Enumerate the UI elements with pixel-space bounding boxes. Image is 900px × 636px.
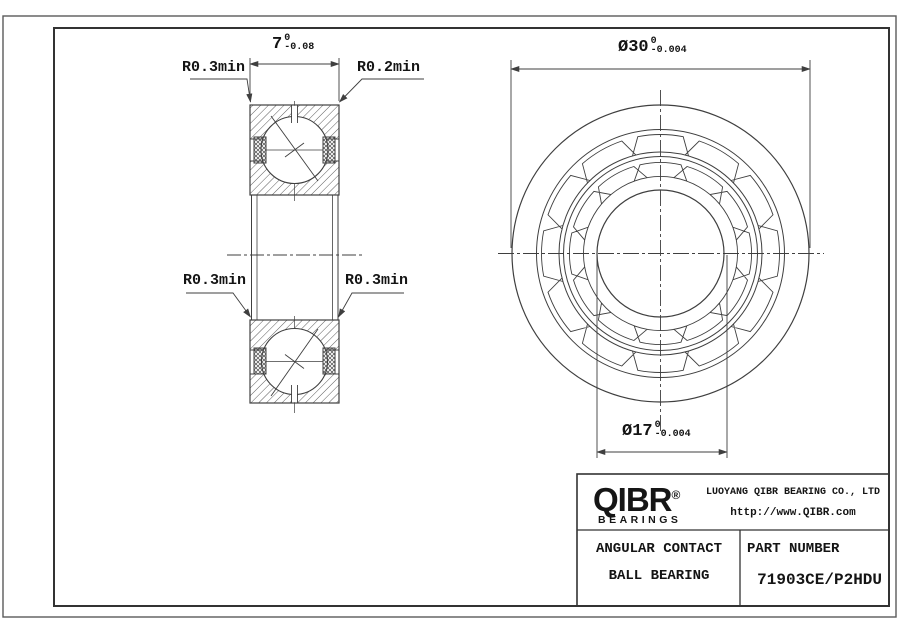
radius-label-mid-right: R0.3min (345, 273, 408, 288)
brand-logo: QIBR® (593, 479, 680, 516)
brand-logo-subtitle: BEARINGS (598, 514, 681, 526)
drawing-sheet: 7 0-0.08 Ø30 0-0.004 Ø17 0-0.004 R0.3min… (0, 0, 900, 636)
cage-right (323, 348, 335, 374)
cage-left (254, 137, 266, 163)
cross-section-view (186, 58, 424, 413)
sheet-frames (3, 16, 896, 617)
product-name-line1: ANGULAR CONTACT (579, 541, 739, 557)
top-section (250, 101, 339, 201)
part-number-value: 71903CE/P2HDU (740, 571, 882, 589)
od-dimension-text: Ø30 0-0.004 (618, 39, 687, 57)
company-website: http://www.QIBR.com (703, 507, 883, 519)
cage-left (254, 348, 266, 374)
product-name-line2: BALL BEARING (579, 568, 739, 584)
bore-dimension-text: Ø17 0-0.004 (622, 423, 691, 441)
company-name: LUOYANG QIBR BEARING CO., LTD (703, 487, 883, 498)
registered-mark: ® (672, 488, 681, 502)
radius-label-top-left: R0.3min (182, 60, 245, 75)
width-dimension (250, 58, 339, 101)
cage-right (323, 137, 335, 163)
radius-label-mid-left: R0.3min (183, 273, 246, 288)
part-number-label: PART NUMBER (747, 541, 839, 557)
bottom-section (250, 316, 339, 413)
front-view (498, 60, 824, 458)
width-dimension-text: 7 0-0.08 (272, 36, 314, 54)
radius-label-top-right: R0.2min (357, 60, 420, 75)
